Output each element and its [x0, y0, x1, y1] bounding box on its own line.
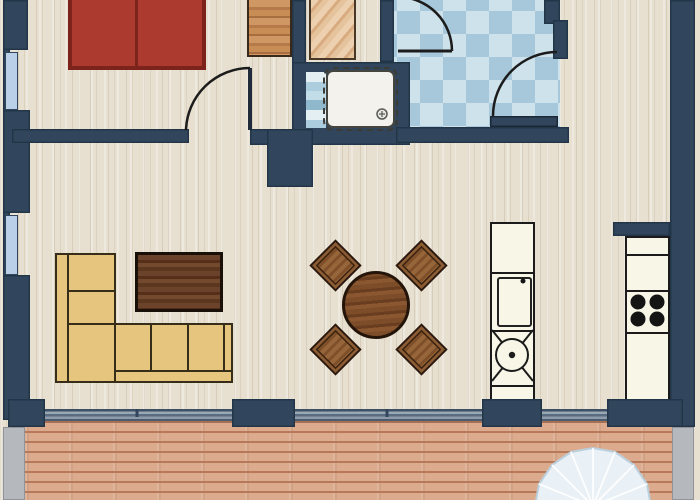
bedroom-wardrobe	[247, 0, 292, 57]
bathroom-left-wall	[380, 0, 394, 62]
sofa-cushion	[67, 253, 116, 292]
bathroom-door-jamb	[553, 20, 568, 59]
cabinet-divider	[492, 272, 533, 274]
sofa-backrest-bottom	[114, 370, 233, 383]
mattress-divider	[135, 0, 138, 66]
concrete-strip-left	[3, 427, 25, 500]
duct-column	[267, 129, 313, 187]
floor-plan	[0, 0, 700, 500]
bathroom-bottom-wall	[396, 127, 569, 143]
bedroom-bottom-wall	[12, 129, 189, 143]
sofa-cushion	[114, 323, 152, 372]
closet-wardrobe	[309, 0, 356, 60]
cabinet-divider	[492, 330, 533, 332]
sofa-cushion	[150, 323, 189, 372]
coffee-table	[135, 252, 223, 312]
left-wall-segment	[3, 110, 30, 213]
shower-tray	[326, 70, 395, 128]
cabinet-divider	[492, 385, 533, 387]
sofa-corner-cushion	[67, 323, 116, 383]
sliding-door-track	[25, 409, 694, 421]
terrace-post	[8, 399, 45, 427]
cabinet-divider	[627, 290, 668, 292]
oven-appliance	[497, 277, 532, 327]
shower-tile-strip	[306, 72, 326, 128]
terrace-post	[482, 399, 542, 427]
sofa-cushion	[67, 290, 116, 325]
double-bed	[68, 0, 206, 70]
kitchen-wall-unit	[625, 236, 670, 405]
terrace-post	[232, 399, 295, 427]
kitchen-counter-bracket	[613, 222, 670, 236]
cabinet-divider	[627, 254, 668, 256]
cabinet-divider	[627, 332, 668, 334]
bathroom-door-leaf	[490, 116, 558, 127]
bathroom-tile-floor	[394, 0, 560, 131]
concrete-strip-right	[672, 427, 694, 500]
terrace-deck	[25, 421, 672, 500]
left-wall-segment	[3, 0, 28, 50]
dining-table	[342, 271, 410, 339]
right-wall	[670, 0, 695, 427]
window-bedroom	[5, 52, 18, 110]
kitchen-island-unit	[490, 222, 535, 402]
terrace-post	[607, 399, 683, 427]
window-living-room	[5, 215, 18, 275]
sofa-cushion	[187, 323, 225, 372]
